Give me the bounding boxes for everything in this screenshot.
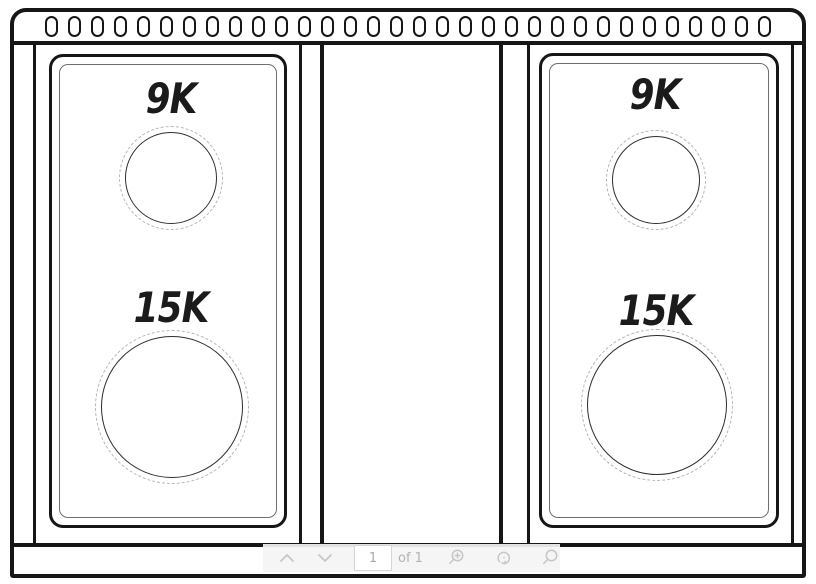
pdf-toolbar: of 1 — [263, 544, 560, 572]
page-number-input[interactable] — [354, 545, 392, 571]
vent-slot — [160, 16, 173, 37]
vent-slot — [689, 16, 702, 37]
vent-slot — [183, 16, 196, 37]
vent-slot — [528, 16, 541, 37]
next-page-button[interactable] — [314, 547, 336, 569]
vent-slot — [45, 16, 58, 37]
chevron-up-icon — [277, 549, 297, 567]
vent-strip — [14, 12, 802, 45]
vent-slot — [666, 16, 679, 37]
vent-slot — [758, 16, 771, 37]
vent-slot — [574, 16, 587, 37]
vent-slot — [390, 16, 403, 37]
vent-slot — [252, 16, 265, 37]
vent-slot — [597, 16, 610, 37]
previous-page-button[interactable] — [276, 547, 298, 569]
vent-slot — [413, 16, 426, 37]
vent-slot — [482, 16, 495, 37]
center-section-left-edge — [320, 45, 324, 543]
zoom-in-button[interactable] — [445, 547, 467, 569]
vent-slot — [459, 16, 472, 37]
right-small-burner — [612, 136, 700, 224]
left-panel-zone-divider — [299, 45, 302, 543]
search-button[interactable] — [539, 547, 561, 569]
vent-slot — [367, 16, 380, 37]
vent-slot — [344, 16, 357, 37]
vent-slot — [275, 16, 288, 37]
vent-slot — [137, 16, 150, 37]
vent-slot — [206, 16, 219, 37]
left-small-burner-rating: 9K — [112, 78, 231, 120]
zoom-in-icon — [446, 548, 466, 568]
vent-slot — [505, 16, 518, 37]
search-icon — [540, 548, 560, 568]
vent-slot — [712, 16, 725, 37]
vent-slot — [229, 16, 242, 37]
vent-slot — [321, 16, 334, 37]
right-large-burner — [587, 335, 727, 475]
vent-slot — [298, 16, 311, 37]
center-section-right-edge — [499, 45, 503, 543]
vent-slot — [436, 16, 449, 37]
vent-slot — [620, 16, 633, 37]
rotate-icon — [494, 548, 514, 568]
left-small-burner — [125, 132, 217, 224]
rotate-button[interactable] — [493, 547, 515, 569]
vent-slot — [551, 16, 564, 37]
page-total-label: of 1 — [398, 551, 423, 566]
left-large-burner-rating: 15K — [112, 287, 231, 329]
vent-slot — [68, 16, 81, 37]
vent-slot — [735, 16, 748, 37]
vent-slot — [91, 16, 104, 37]
right-large-burner-rating: 15K — [597, 290, 716, 332]
chevron-down-icon — [315, 549, 335, 567]
vent-slot — [114, 16, 127, 37]
vent-slot — [643, 16, 656, 37]
right-small-burner-rating: 9K — [596, 74, 715, 116]
left-large-burner — [101, 336, 243, 478]
frame-line-right — [791, 45, 794, 543]
frame-line-left — [33, 45, 36, 543]
right-panel-zone-divider — [527, 45, 530, 543]
